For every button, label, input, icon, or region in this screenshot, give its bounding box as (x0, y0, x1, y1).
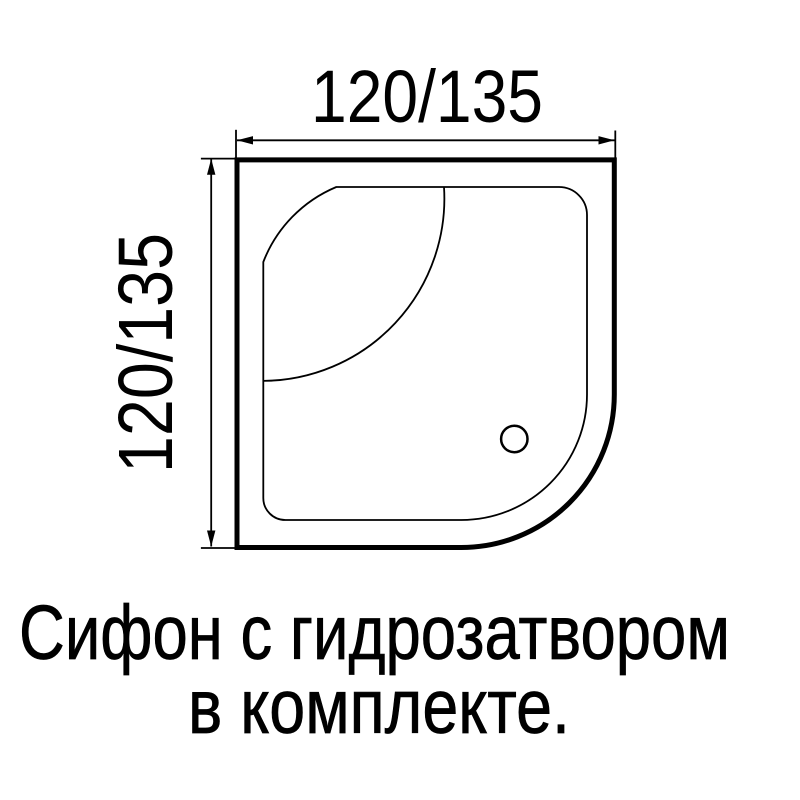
svg-text:в комплекте.: в комплекте. (188, 664, 570, 750)
svg-text:120/135: 120/135 (311, 55, 543, 138)
svg-text:120/135: 120/135 (103, 233, 189, 473)
